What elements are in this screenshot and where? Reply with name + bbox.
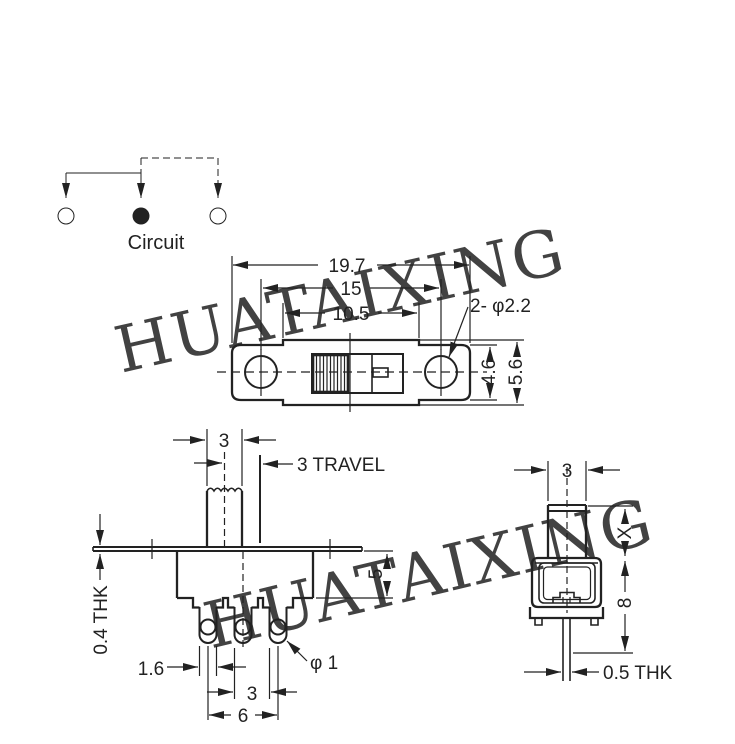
slider-slot: [312, 354, 403, 393]
dim-body-height: 5: [366, 569, 387, 580]
dim-hole-pitch: 15: [340, 279, 361, 300]
dim-overall-length: 19.7: [329, 256, 366, 277]
dim-terminal-span: 6: [238, 706, 249, 727]
knob-serration-hatch: [317, 356, 345, 391]
circuit-diagram: Circuit: [58, 158, 226, 254]
dim-terminal-hole: φ 1: [310, 653, 338, 674]
dim-body-width: 5.6: [506, 359, 527, 385]
dim-travel: 3 TRAVEL: [297, 455, 385, 476]
dim-knob-width: 3: [219, 431, 230, 452]
leader-line: [449, 307, 468, 357]
pole-right-circle: [210, 208, 226, 224]
dim-overall-height: 8: [615, 598, 636, 609]
circuit-label: Circuit: [128, 232, 185, 254]
dim-body-length: 10.5: [333, 304, 370, 325]
watermark-text-lower: HUATAIXING: [197, 485, 661, 664]
dim-knob-height: X: [615, 526, 636, 539]
pole-common-filled-circle: [133, 208, 150, 225]
dim-frame-width: 4.6: [479, 359, 500, 385]
technical-drawing-page: HUATAIXING HUATAIXING Circuit: [0, 0, 735, 744]
dim-holes-callout: 2- φ2.2: [470, 296, 531, 317]
dim-terminal-thickness: 0.5 THK: [603, 663, 673, 684]
pole-left-circle: [58, 208, 74, 224]
switch-drawing-svg: HUATAIXING HUATAIXING Circuit: [0, 0, 735, 744]
dim-knob-width: 3: [562, 461, 573, 482]
dim-terminal-width: 1.6: [138, 659, 164, 680]
dim-frame-thickness: 0.4 THK: [91, 585, 112, 655]
dim-terminal-pitch: 3: [247, 684, 258, 705]
